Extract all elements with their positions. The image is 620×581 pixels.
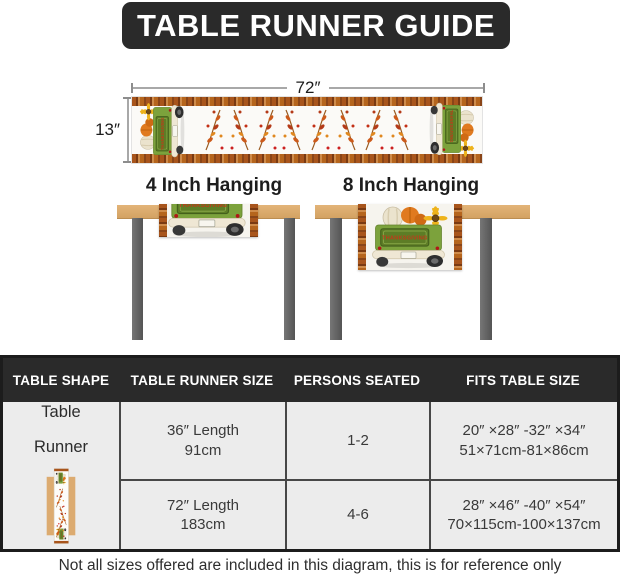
header-cell-table-shape: TABLE SHAPE (3, 358, 119, 402)
plaid-edge-right (454, 204, 462, 270)
hanging-8in-title: 8 Inch Hanging (311, 175, 511, 197)
persons-seated-row2: 4-6 (347, 505, 369, 525)
table-shape-cell: Table Runner (3, 402, 119, 549)
plaid-edge-right (250, 204, 258, 237)
table-shape-label-line2: Runner (34, 437, 88, 458)
vertical-runner-illustration (33, 463, 89, 549)
runner-hang-8in-art (366, 204, 454, 270)
dimension-line (133, 87, 287, 89)
plaid-edge-left (159, 204, 167, 237)
runner-size-row1-line2: 91cm (185, 441, 222, 461)
autumn-leaf-sprigs (202, 106, 412, 154)
plaid-edge-left (358, 204, 366, 270)
size-chart-table: TABLE SHAPE TABLE RUNNER SIZE PERSONS SE… (0, 355, 620, 552)
table-leg (132, 218, 143, 340)
runner-size-row2-line2: 183cm (180, 515, 225, 535)
width-dimension-label: 72″ (287, 78, 330, 98)
height-dimension-label: 13″ (90, 120, 120, 140)
header-cell-persons-seated: PERSONS SEATED (285, 358, 429, 402)
fits-size-row2-line2: 70×115cm-100×137cm (447, 515, 600, 535)
runner-hang-4in (159, 204, 258, 237)
truck-illustration-left (134, 102, 190, 158)
table-shape-label: Table Runner (34, 402, 88, 459)
runner-hang-4in-art (167, 204, 250, 237)
runner-size-cell-row1: 36″ Length 91cm (119, 402, 285, 479)
table-shape-label-line1: Table (34, 402, 88, 423)
table-leg (330, 218, 342, 340)
table-runner-preview (132, 97, 482, 163)
runner-hang-8in (358, 204, 462, 270)
fits-table-size-cell-row1: 20″ ×28″ -32″ ×34″ 51×71cm-81×86cm (429, 402, 617, 479)
runner-size-row2-line1: 72″ Length (167, 496, 239, 516)
fits-size-row1-line2: 51×71cm-81×86cm (459, 441, 588, 461)
disclaimer-footnote: Not all sizes offered are included in th… (0, 557, 620, 575)
header-cell-fits-table-size: FITS TABLE SIZE (429, 358, 617, 402)
truck-illustration-right (424, 102, 480, 158)
infographic-canvas: THANKSGIVING TAB (0, 0, 620, 581)
header-cell-runner-size: TABLE RUNNER SIZE (119, 358, 285, 402)
table-leg (284, 218, 295, 340)
width-dimension: 72″ (131, 79, 485, 97)
hanging-4in-title: 4 Inch Hanging (114, 175, 314, 197)
runner-size-cell-row2: 72″ Length 183cm (119, 479, 285, 549)
fits-size-row1-line1: 20″ ×28″ -32″ ×34″ (463, 421, 586, 441)
title-banner: TABLE RUNNER GUIDE (122, 2, 510, 49)
persons-seated-cell-row2: 4-6 (285, 479, 429, 549)
runner-size-row1-line1: 36″ Length (167, 421, 239, 441)
dimension-line (127, 99, 129, 161)
persons-seated-row1: 1-2 (347, 431, 369, 451)
dimension-tick (483, 83, 485, 93)
dimension-line (329, 87, 483, 89)
table-leg (480, 218, 492, 340)
fits-size-row2-line1: 28″ ×46″ -40″ ×54″ (463, 496, 586, 516)
persons-seated-cell-row1: 1-2 (285, 402, 429, 479)
fits-table-size-cell-row2: 28″ ×46″ -40″ ×54″ 70×115cm-100×137cm (429, 479, 617, 549)
page-title: TABLE RUNNER GUIDE (137, 8, 495, 44)
